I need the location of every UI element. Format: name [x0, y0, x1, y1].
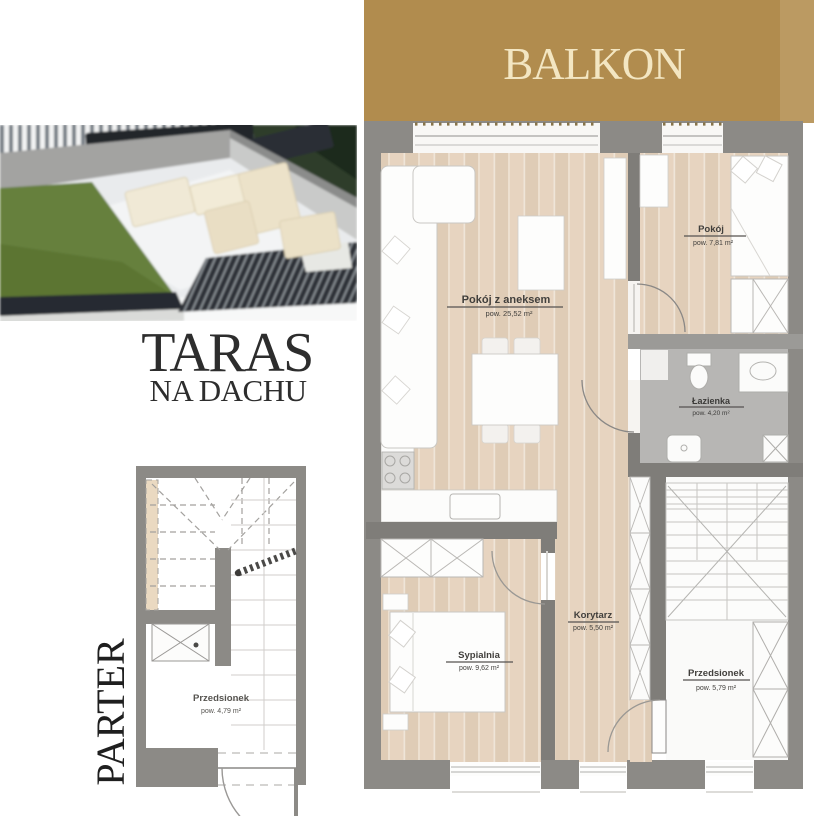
svg-text:pow. 7,81 m²: pow. 7,81 m²	[693, 240, 734, 247]
svg-text:pow. 4,79 m²: pow. 4,79 m²	[201, 708, 242, 715]
svg-text:PARTER: PARTER	[88, 638, 133, 786]
svg-text:Pokój: Pokój	[698, 224, 724, 235]
svg-text:pow. 5,79 m²: pow. 5,79 m²	[696, 685, 737, 692]
svg-text:Pokój z aneksem: Pokój z aneksem	[462, 294, 551, 306]
svg-text:pow. 9,62 m²: pow. 9,62 m²	[459, 665, 500, 672]
svg-text:Korytarz: Korytarz	[574, 610, 613, 621]
svg-text:Łazienka: Łazienka	[692, 396, 731, 406]
svg-text:Sypialnia: Sypialnia	[458, 650, 500, 661]
svg-text:Przedsionek: Przedsionek	[688, 668, 745, 679]
svg-text:Przedsionek: Przedsionek	[193, 693, 250, 704]
svg-text:NA DACHU: NA DACHU	[149, 373, 306, 408]
svg-text:pow. 4,20 m²: pow. 4,20 m²	[692, 410, 730, 417]
svg-text:BALKON: BALKON	[503, 39, 685, 89]
svg-text:pow. 25,52 m²: pow. 25,52 m²	[485, 309, 533, 318]
svg-text:pow. 5,50 m²: pow. 5,50 m²	[573, 625, 614, 632]
